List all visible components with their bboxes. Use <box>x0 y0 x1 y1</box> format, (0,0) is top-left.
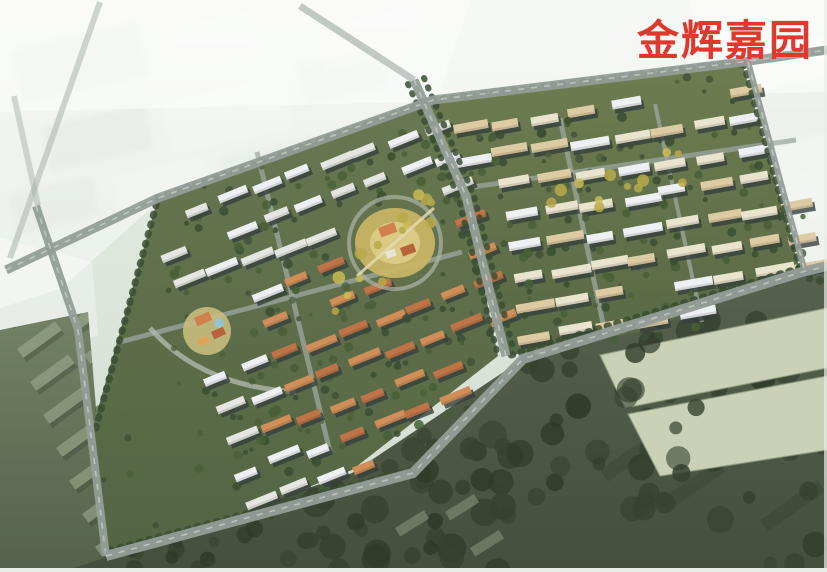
scene-canvas <box>0 0 827 572</box>
aerial-rendering: 金辉嘉园 <box>0 0 827 572</box>
image-border-bottom <box>0 568 827 572</box>
project-title-text: 金辉嘉园 <box>637 20 813 62</box>
